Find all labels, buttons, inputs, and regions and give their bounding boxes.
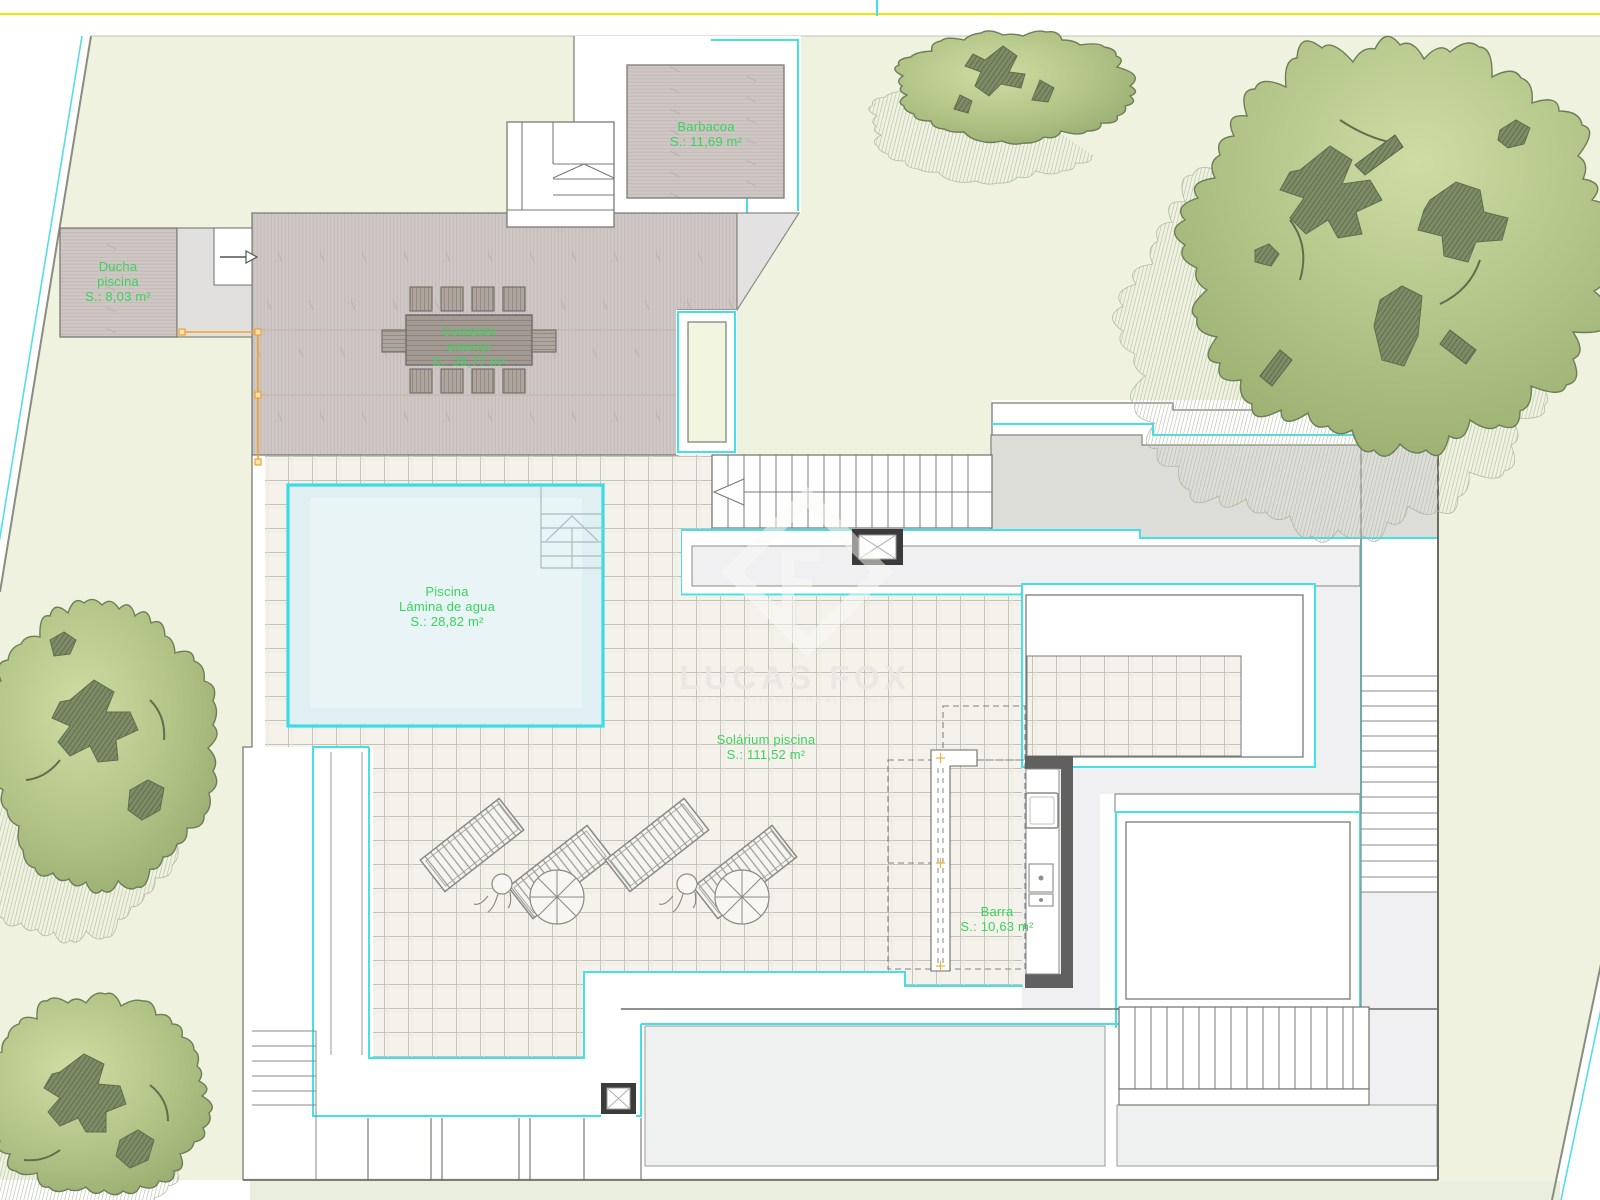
svg-text:S.: 111,52 m²: S.: 111,52 m² xyxy=(727,747,806,762)
svg-text:INTERNATIONAL REAL ESTATE: INTERNATIONAL REAL ESTATE xyxy=(692,695,897,705)
svg-text:S.: 10,63 m²: S.: 10,63 m² xyxy=(960,919,1034,934)
svg-text:S.: 8,03 m²: S.: 8,03 m² xyxy=(85,289,151,304)
svg-text:S.: 11,69 m²: S.: 11,69 m² xyxy=(670,134,743,149)
svg-text:LUCAS FOX: LUCAS FOX xyxy=(679,659,910,696)
svg-text:Ducha: Ducha xyxy=(99,259,138,274)
svg-text:Comedor: Comedor xyxy=(442,324,497,339)
svg-text:Barbacoa: Barbacoa xyxy=(677,119,735,134)
svg-text:Barra: Barra xyxy=(981,904,1014,919)
svg-text:Piscina: Piscina xyxy=(425,584,469,599)
svg-text:S.: 28,77 m²: S.: 28,77 m² xyxy=(432,354,506,369)
svg-text:piscina: piscina xyxy=(97,274,139,289)
svg-text:S.: 28,82 m²: S.: 28,82 m² xyxy=(410,614,484,629)
svg-text:Solárium piscina: Solárium piscina xyxy=(717,732,816,747)
svg-text:Lámina de agua: Lámina de agua xyxy=(399,599,496,614)
svg-text:exterior: exterior xyxy=(447,339,492,354)
